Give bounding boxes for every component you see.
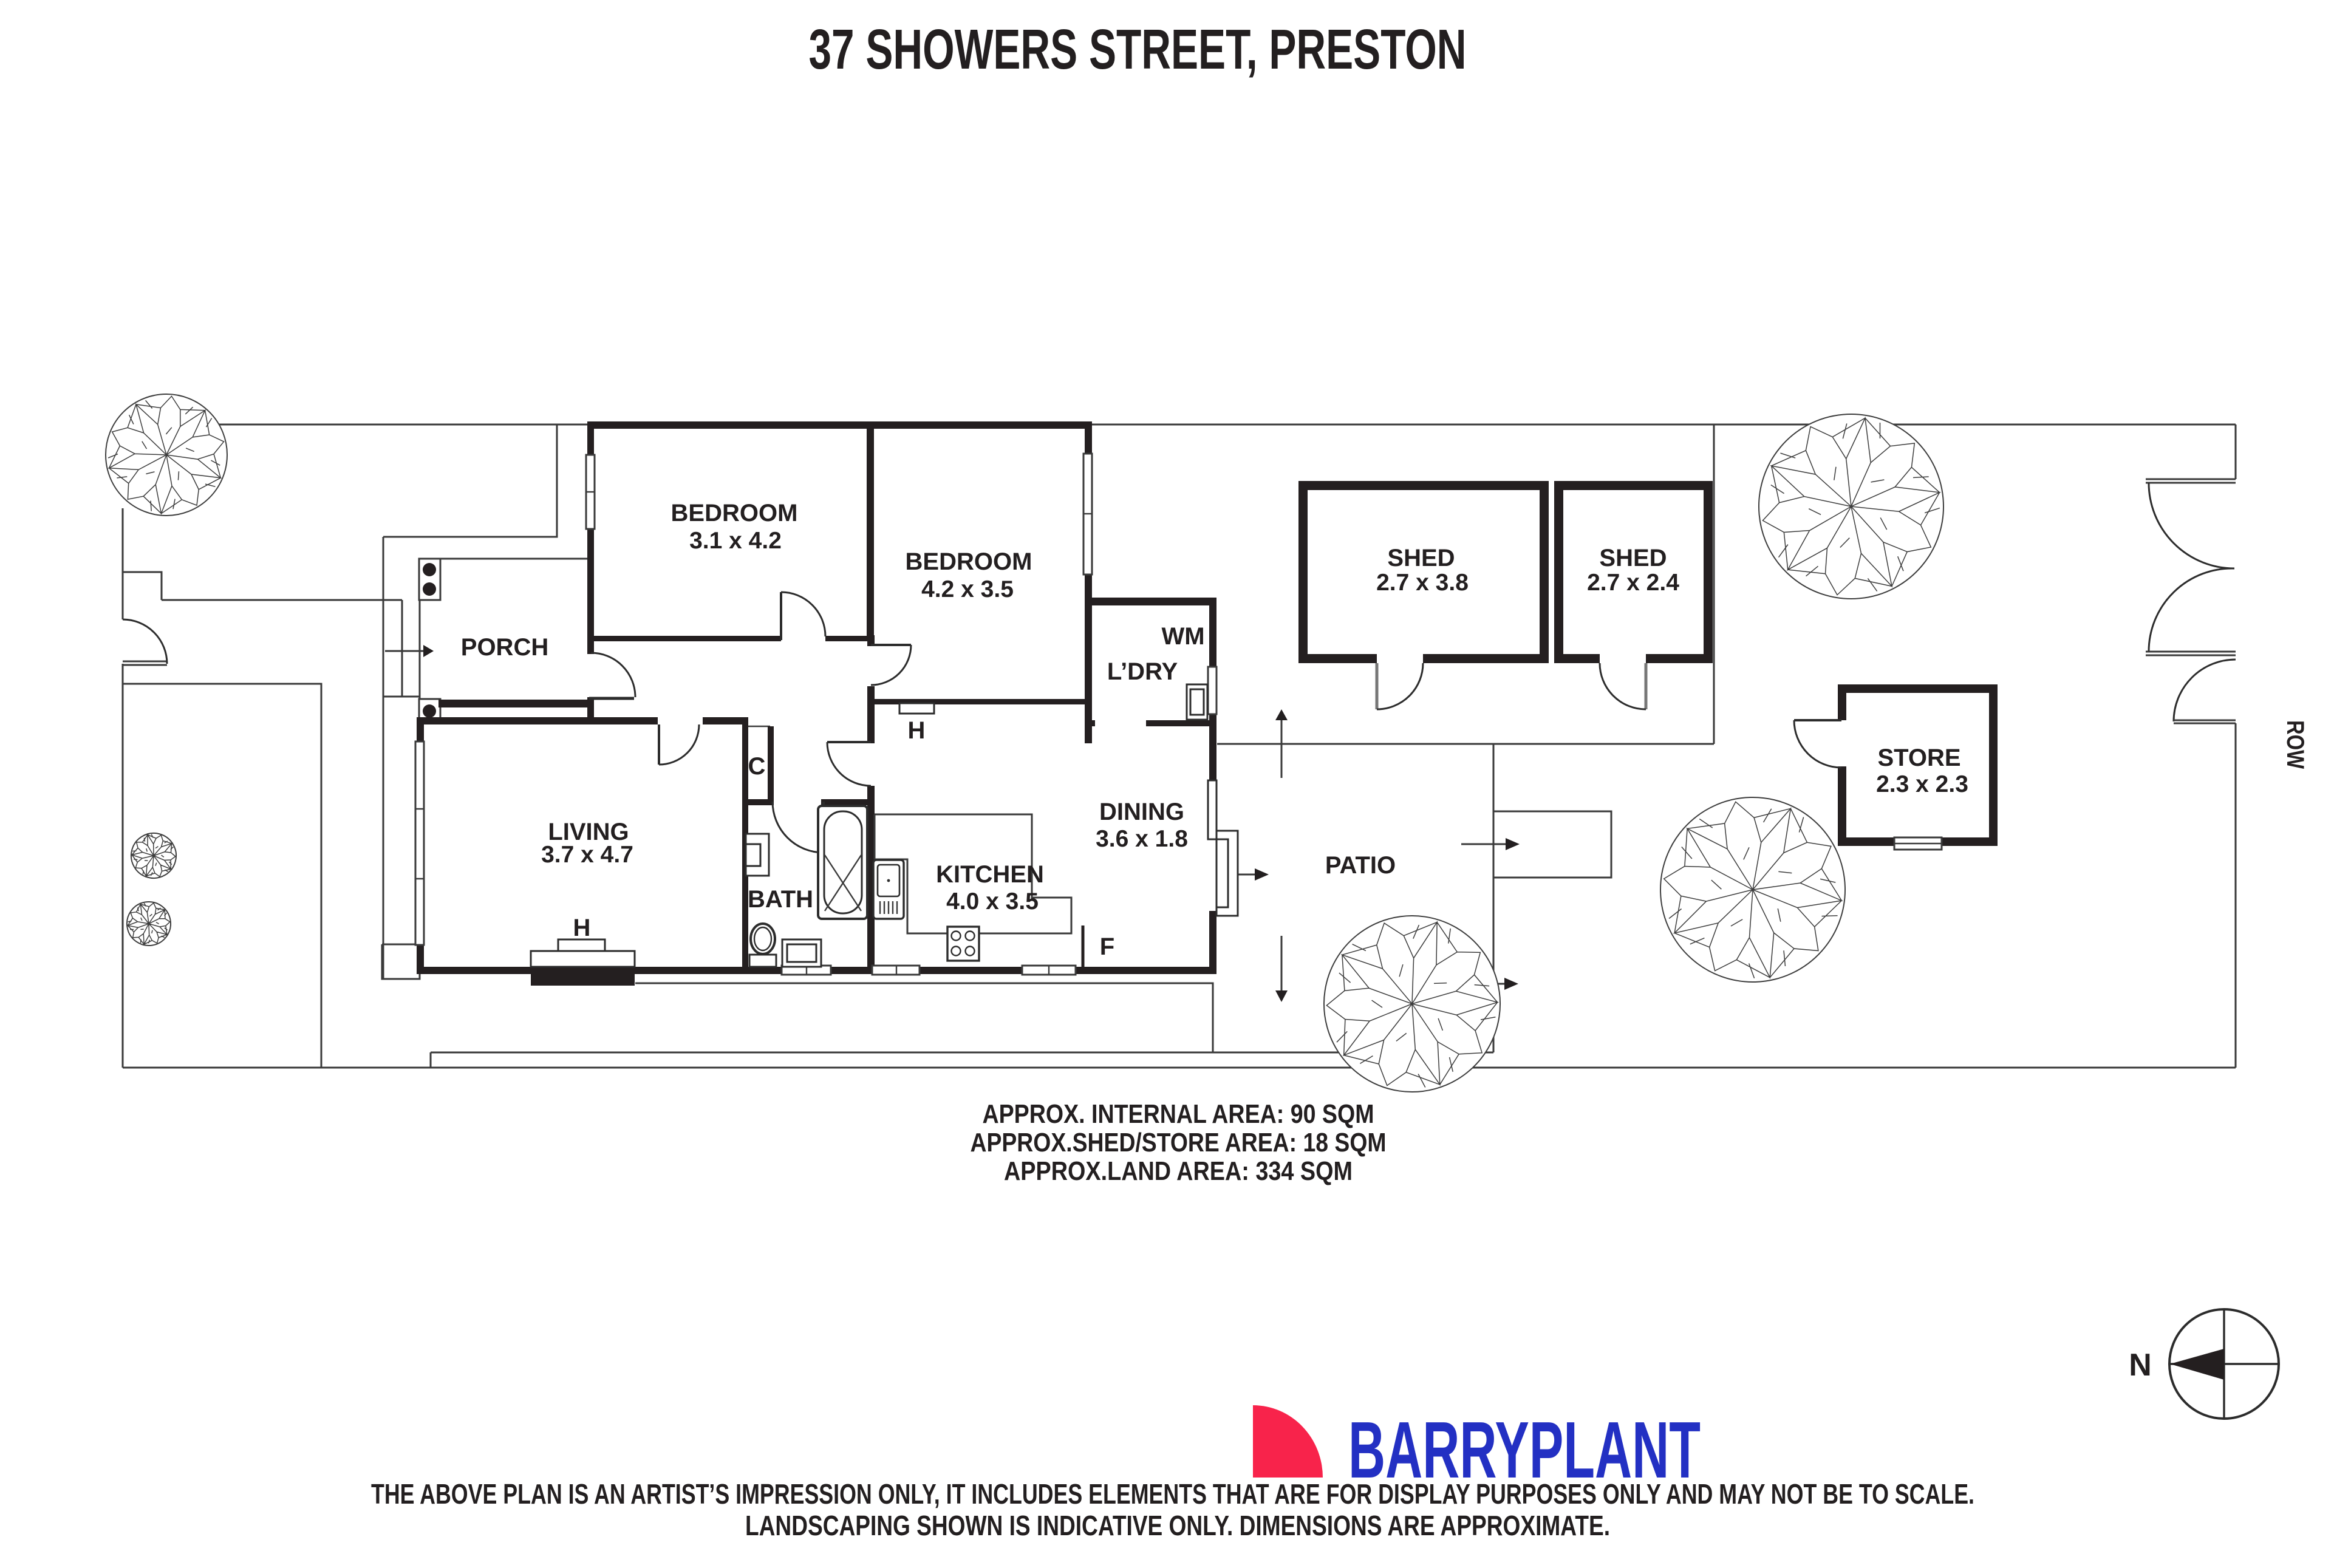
svg-text:2.7 x 2.4: 2.7 x 2.4 <box>1587 570 1679 596</box>
svg-text:SHED: SHED <box>1387 545 1455 571</box>
svg-text:H: H <box>573 915 591 941</box>
svg-text:SHED: SHED <box>1599 545 1667 571</box>
svg-text:ROW: ROW <box>2282 720 2308 769</box>
svg-text:LANDSCAPING SHOWN IS INDICATIV: LANDSCAPING SHOWN IS INDICATIVE ONLY. DI… <box>745 1510 1610 1541</box>
svg-text:2.7 x 3.8: 2.7 x 3.8 <box>1376 570 1469 596</box>
svg-text:H: H <box>908 717 926 744</box>
svg-text:37 SHOWERS STREET, PRESTON: 37 SHOWERS STREET, PRESTON <box>809 18 1467 81</box>
svg-text:APPROX.LAND AREA: 334 SQM: APPROX.LAND AREA: 334 SQM <box>1004 1156 1353 1186</box>
svg-text:3.6 x 1.8: 3.6 x 1.8 <box>1096 826 1188 852</box>
svg-text:4.0 x 3.5: 4.0 x 3.5 <box>946 888 1039 915</box>
svg-text:PATIO: PATIO <box>1325 852 1396 879</box>
svg-text:BATH: BATH <box>748 886 813 913</box>
svg-text:THE ABOVE PLAN IS AN ARTIST’S: THE ABOVE PLAN IS AN ARTIST’S IMPRESSION… <box>371 1478 1974 1510</box>
svg-text:KITCHEN: KITCHEN <box>936 861 1044 888</box>
svg-text:F: F <box>1100 933 1114 960</box>
svg-text:L’DRY: L’DRY <box>1107 658 1178 685</box>
svg-text:APPROX. INTERNAL AREA: 90 SQM: APPROX. INTERNAL AREA: 90 SQM <box>983 1099 1374 1129</box>
svg-text:3.7 x 4.7: 3.7 x 4.7 <box>541 842 633 868</box>
svg-text:2.3 x 2.3: 2.3 x 2.3 <box>1876 771 1968 797</box>
svg-text:3.1 x 4.2: 3.1 x 4.2 <box>689 528 782 554</box>
svg-text:N: N <box>2129 1348 2152 1383</box>
svg-text:4.2 x 3.5: 4.2 x 3.5 <box>921 576 1014 602</box>
svg-text:DINING: DINING <box>1099 799 1184 825</box>
svg-text:C: C <box>748 753 766 780</box>
svg-text:PORCH: PORCH <box>461 634 548 661</box>
svg-text:BEDROOM: BEDROOM <box>906 548 1032 575</box>
svg-text:STORE: STORE <box>1877 745 1960 771</box>
svg-text:WM: WM <box>1161 623 1204 650</box>
svg-text:APPROX.SHED/STORE AREA: 18 SQM: APPROX.SHED/STORE AREA: 18 SQM <box>971 1128 1387 1157</box>
svg-text:BEDROOM: BEDROOM <box>671 500 798 527</box>
